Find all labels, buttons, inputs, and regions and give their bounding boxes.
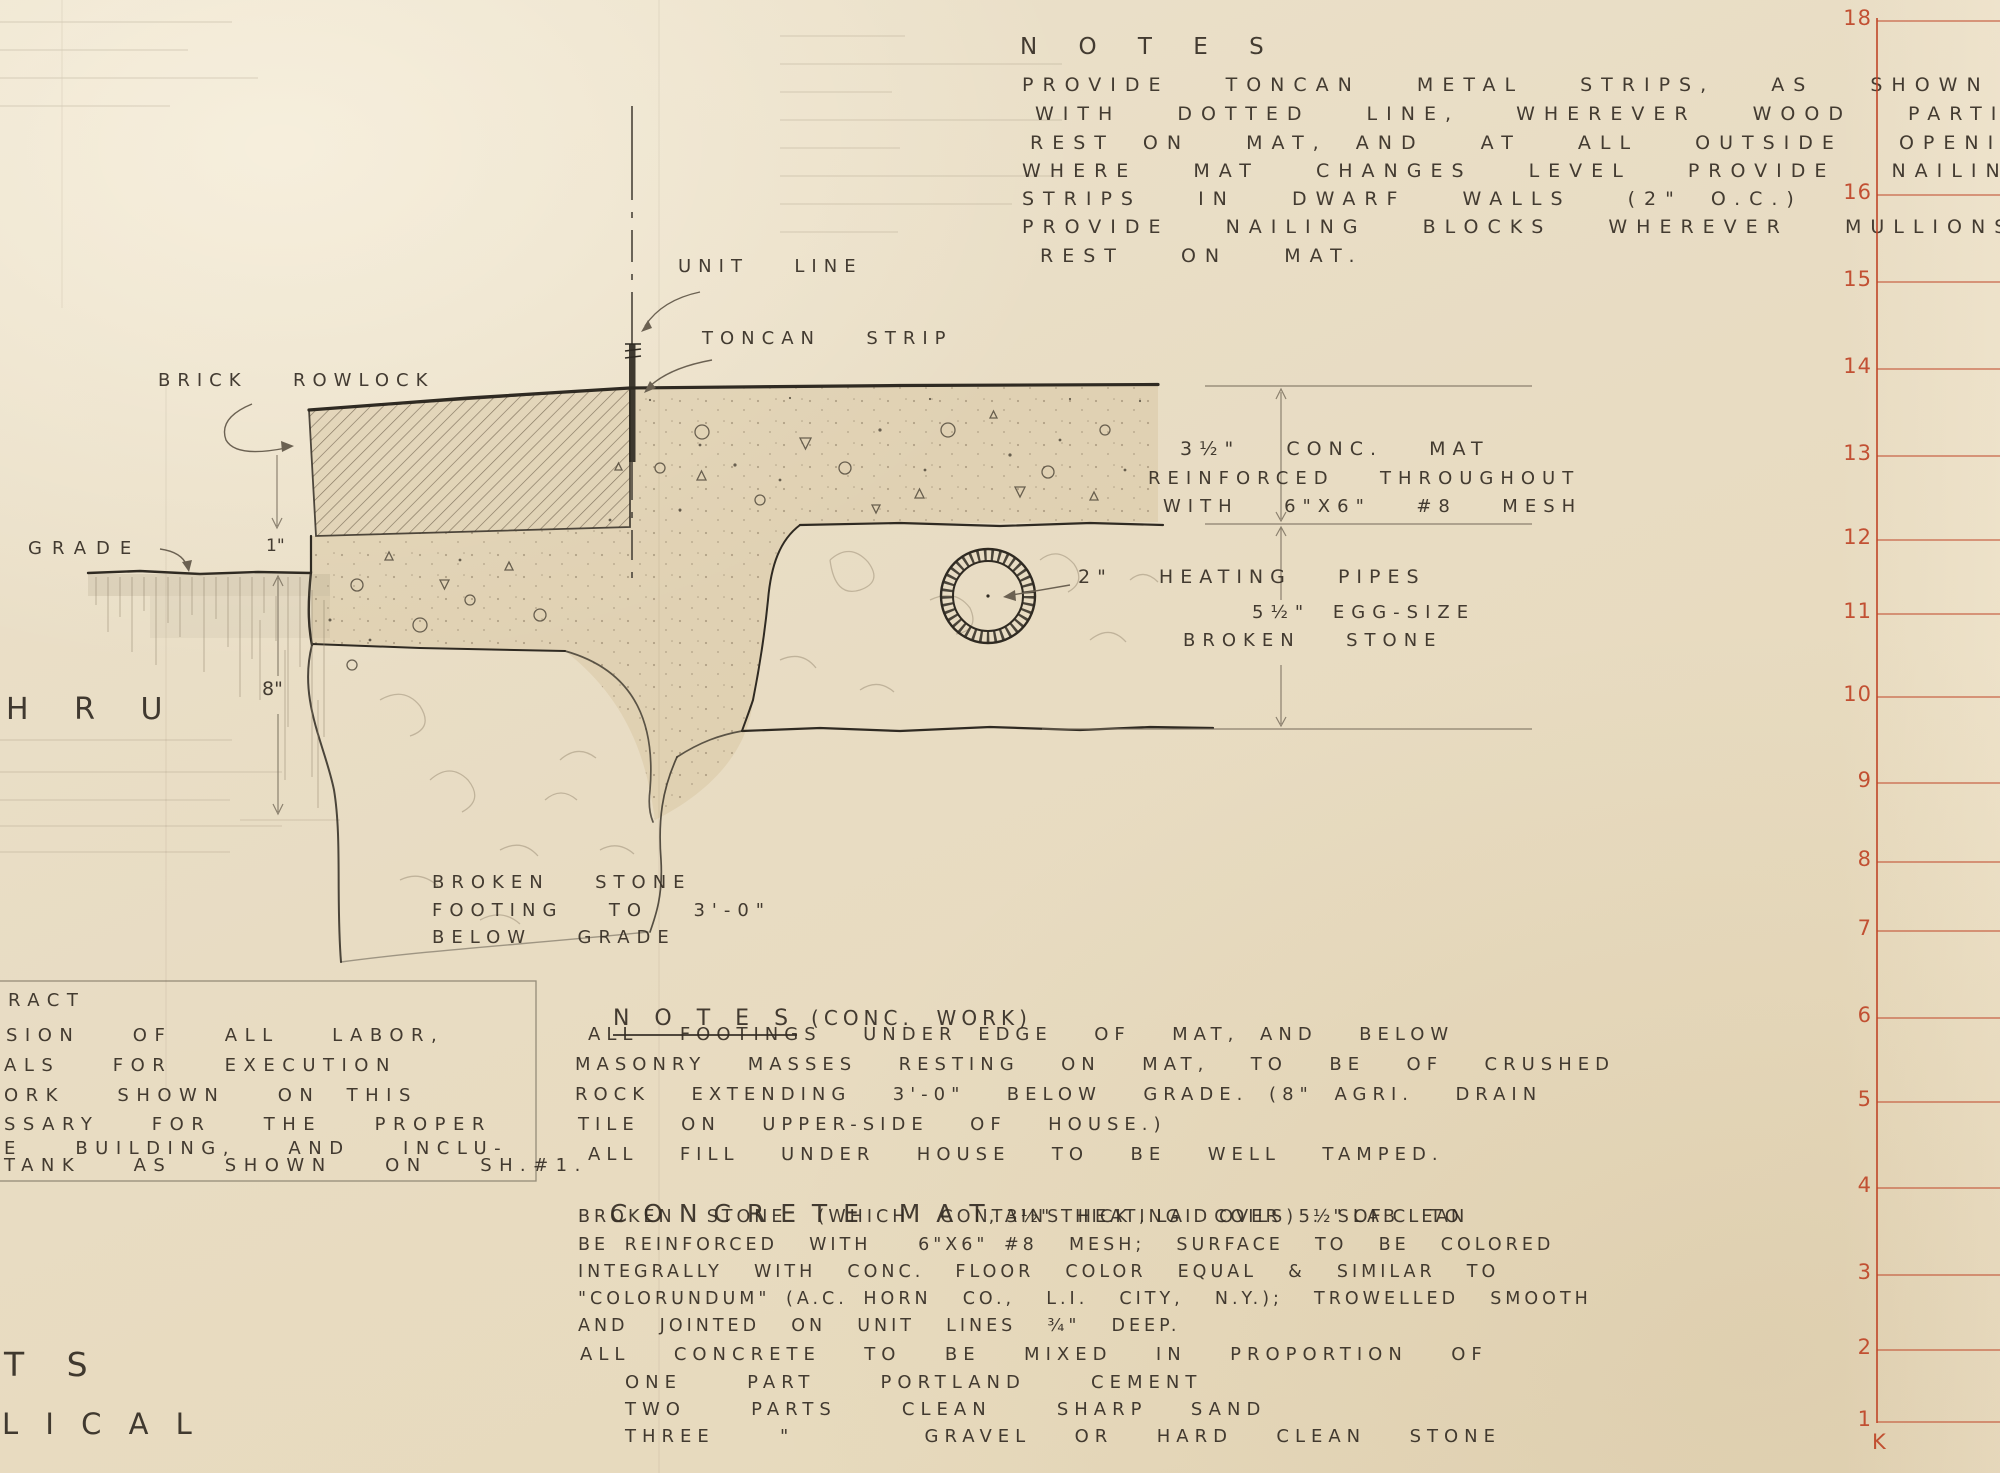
title-fragment-ts: T S: [4, 1348, 104, 1381]
ruler-number: 12: [1826, 525, 1872, 549]
ruler-tick-line: [1877, 1187, 2000, 1189]
spec-line: TANK AS SHOWN ON SH.#1.: [4, 1157, 588, 1175]
title-fragment-lical: L I C A L: [2, 1410, 201, 1439]
conc-notes-line: ALL FILL UNDER HOUSE TO BE WELL TAMPED.: [588, 1146, 1444, 1164]
ruler-tick-line: [1877, 1421, 2000, 1423]
ruler-number: 4: [1826, 1173, 1872, 1197]
ruler-number: 9: [1826, 768, 1872, 792]
concrete-mat-line: BE REINFORCED WITH 6"X6" #8 MESH; SURFAC…: [578, 1237, 1554, 1255]
ruler-tick-line: [1877, 782, 2000, 784]
ruler-tick-line: [1877, 368, 2000, 370]
mix-line: ALL CONCRETE TO BE MIXED IN PROPORTION O…: [580, 1346, 1488, 1364]
ruler-tick-line: [1877, 281, 2000, 283]
ruler-number: 15: [1826, 267, 1872, 291]
spec-line: ALS FOR EXECUTION: [4, 1057, 397, 1075]
conc-mat-note: 3½" CONC. MAT: [1180, 440, 1490, 459]
paper-sheet: N O T E S PROVIDE TONCAN METAL STRIPS, A…: [0, 0, 2000, 1473]
ruler-tick-line: [1877, 1101, 2000, 1103]
grade-hatching: [88, 574, 330, 808]
spec-line: ORK SHOWN ON THIS: [4, 1087, 418, 1105]
mix-line: ONE PART PORTLAND CEMENT: [625, 1374, 1202, 1392]
brick-rowlock-label: BRICK ROWLOCK: [158, 372, 434, 390]
notes-line: REST ON MAT.: [1040, 247, 1364, 266]
ruler-tick-line: [1877, 1274, 2000, 1276]
conc-mat-note: REINFORCED THROUGHOUT: [1148, 470, 1580, 488]
paper-fold-line: [658, 0, 660, 1473]
ruler-number: 3: [1826, 1260, 1872, 1284]
concrete-mat-line: "COLORUNDUM" (A.C. HORN CO., L.I. CITY, …: [578, 1291, 1592, 1309]
concrete-mat-line: AND JOINTED ON UNIT LINES ¾" DEEP.: [578, 1318, 1180, 1336]
ruler-number: 18: [1826, 6, 1872, 30]
grade-label: GRADE: [28, 540, 141, 558]
conc-notes-line: ALL FOOTINGS UNDER EDGE OF MAT, AND BELO…: [588, 1026, 1454, 1044]
ruler-tick-line: [1877, 861, 2000, 863]
notes-line: STRIPS IN DWARF WALLS (2" O.C.): [1022, 190, 1803, 209]
unit-line-label: UNIT LINE: [678, 258, 863, 276]
heating-pipes-label: 2" HEATING PIPES: [1078, 568, 1426, 587]
ruler-tick-line: [1877, 930, 2000, 932]
ruler-tick-line: [1877, 696, 2000, 698]
ruler-number: 1: [1826, 1407, 1872, 1431]
ruler-number: 6: [1826, 1003, 1872, 1027]
ruler-tick-line: [1877, 539, 2000, 541]
eight-inch-dim-label: 8": [262, 680, 283, 699]
toncan-strip-label: TONCAN STRIP: [702, 330, 953, 348]
ruler-number: 14: [1826, 354, 1872, 378]
footing-note: FOOTING TO 3'-0": [432, 902, 771, 920]
ruler-number: 2: [1826, 1335, 1872, 1359]
ruler-tick-line: [1877, 1017, 2000, 1019]
notes-line: REST ON MAT, AND AT ALL OUTSIDE OPENINGS…: [1030, 134, 2000, 153]
spec-line: RACT: [8, 992, 85, 1010]
ruler-number: 5: [1826, 1087, 1872, 1111]
brick-rowlock-hatch: [309, 388, 630, 536]
ruler-number: 7: [1826, 916, 1872, 940]
ruler-number: 8: [1826, 847, 1872, 871]
broken-stone-note: 5½" EGG-SIZE: [1252, 604, 1475, 622]
paper-fold-line: [165, 380, 167, 1100]
ruler-number: 10: [1826, 682, 1872, 706]
ruler-number: 13: [1826, 441, 1872, 465]
ruler-corner-letter: K: [1872, 1430, 1932, 1454]
ruler-number: 16: [1826, 180, 1872, 204]
ruler-tick-line: [1877, 455, 2000, 457]
spec-line: SSARY FOR THE PROPER: [4, 1116, 492, 1134]
notes-title: N O T E S: [1020, 36, 1281, 59]
concrete-mat-line: BROKEN STONE (WHICH CONTAINS HEATING COI…: [578, 1209, 1463, 1227]
notes-line: PROVIDE NAILING BLOCKS WHEREVER MULLIONS: [1022, 218, 2000, 237]
section-title-fragment: H R U: [6, 695, 180, 725]
ruler-tick-line: [1877, 1349, 2000, 1351]
ruler-number: 11: [1826, 599, 1872, 623]
one-inch-dim-label: 1": [266, 538, 285, 555]
ruler-tick-line: [1877, 613, 2000, 615]
conc-notes-line: ROCK EXTENDING 3'-0" BELOW GRADE. (8" AG…: [575, 1086, 1542, 1104]
notes-line: WITH DOTTED LINE, WHEREVER WOOD PARTITIO…: [1035, 105, 2000, 124]
conc-notes-line: TILE ON UPPER-SIDE OF HOUSE.): [578, 1116, 1167, 1134]
broken-stone-note: BROKEN STONE: [1183, 632, 1443, 650]
ruler-vertical-line: [1876, 18, 1878, 1423]
conc-notes-line: MASONRY MASSES RESTING ON MAT, TO BE OF …: [575, 1056, 1615, 1074]
conc-mat-note: WITH 6"X6" #8 MESH: [1163, 498, 1582, 516]
mix-line: TWO PARTS CLEAN SHARP SAND: [625, 1401, 1266, 1419]
footing-note: BELOW GRADE: [432, 929, 676, 947]
notes-line: WHERE MAT CHANGES LEVEL PROVIDE NAILING: [1022, 162, 2000, 181]
mix-line: THREE " GRAVEL OR HARD CLEAN STONE: [625, 1428, 1501, 1446]
footing-note: BROKEN STONE: [432, 874, 692, 892]
spec-line: SION OF ALL LABOR,: [6, 1027, 444, 1045]
ruler-tick-line: [1877, 194, 2000, 196]
ruler-tick-line: [1877, 20, 2000, 22]
notes-line: PROVIDE TONCAN METAL STRIPS, AS SHOWN: [1022, 76, 1990, 95]
concrete-mat-line: INTEGRALLY WITH CONC. FLOOR COLOR EQUAL …: [578, 1264, 1499, 1282]
